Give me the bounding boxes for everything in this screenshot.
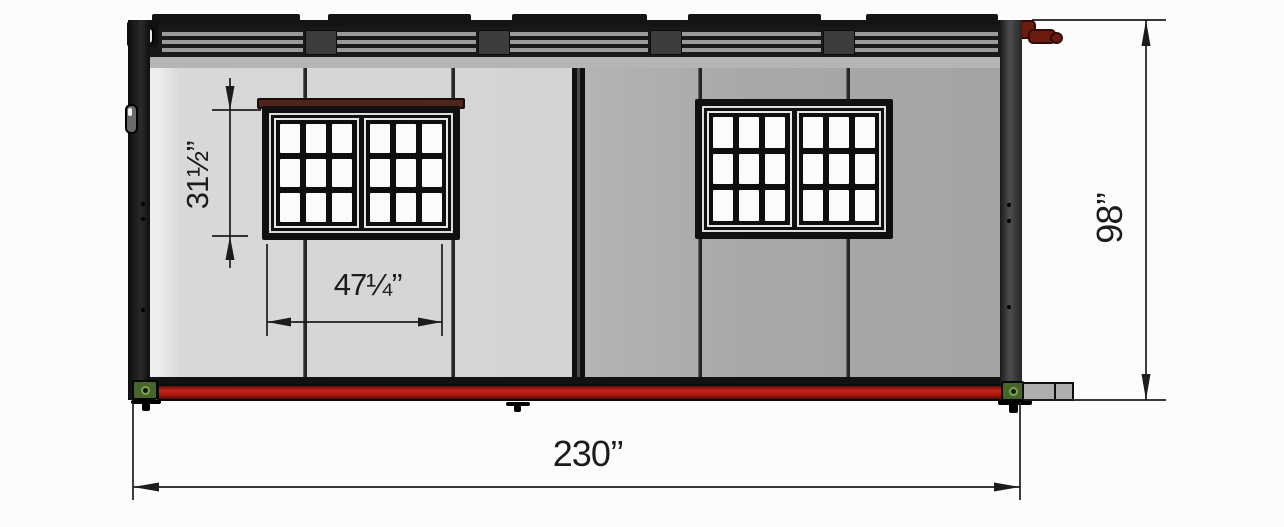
window-pane bbox=[739, 154, 759, 185]
window-pane bbox=[370, 124, 390, 153]
window-pane bbox=[765, 190, 785, 221]
window-pane bbox=[829, 117, 849, 148]
fitting-hole bbox=[1009, 387, 1018, 396]
elevation-drawing: 31½’’ 47¼’’ 98’’ 230’’ bbox=[0, 0, 1284, 527]
roof-tab bbox=[152, 14, 300, 22]
fitting-hole bbox=[141, 386, 150, 395]
window-pane bbox=[422, 193, 442, 222]
window-pane bbox=[803, 117, 823, 148]
window-pane bbox=[422, 159, 442, 188]
window-pane bbox=[370, 193, 390, 222]
roof-vent-slats bbox=[510, 27, 648, 57]
folding-hinge-knob bbox=[1050, 32, 1063, 44]
roof-tab bbox=[688, 14, 821, 22]
folded-floor-step bbox=[1022, 382, 1074, 401]
window-pane bbox=[332, 193, 352, 222]
post-rivet bbox=[1007, 203, 1011, 207]
window-pane bbox=[803, 154, 823, 185]
window-sashes bbox=[274, 118, 448, 228]
window-pane bbox=[306, 159, 326, 188]
window-pane bbox=[332, 124, 352, 153]
corner-post-right bbox=[1000, 20, 1022, 400]
window-pane bbox=[855, 154, 875, 185]
roof-block bbox=[478, 30, 510, 55]
corner-fitting-left bbox=[132, 380, 158, 400]
roof-block bbox=[823, 30, 855, 55]
sash-grid bbox=[280, 124, 353, 222]
roof-vent-slats bbox=[162, 27, 303, 57]
roof-tab bbox=[328, 14, 471, 22]
roof-vent-slats bbox=[337, 27, 476, 57]
window-pane bbox=[803, 190, 823, 221]
ground-foot bbox=[1009, 404, 1018, 413]
roof-fascia bbox=[150, 27, 1000, 57]
ground-foot bbox=[514, 405, 521, 412]
roof-tab bbox=[512, 14, 647, 22]
hinge-knob-highlight bbox=[128, 108, 132, 116]
window-pane bbox=[280, 124, 300, 153]
roof-vent-slats bbox=[682, 27, 821, 57]
window-pane bbox=[396, 159, 416, 188]
window-height-dimension: 31½’’ bbox=[178, 129, 218, 221]
window-pane bbox=[739, 117, 759, 148]
window-sash bbox=[364, 118, 449, 228]
post-rivet bbox=[1007, 305, 1011, 309]
window-pane bbox=[713, 190, 733, 221]
right-window bbox=[695, 99, 893, 239]
window-pane bbox=[829, 154, 849, 185]
ground-foot bbox=[142, 403, 150, 411]
step-divider bbox=[1054, 384, 1056, 399]
window-sash bbox=[707, 111, 792, 227]
window-sash bbox=[797, 111, 882, 227]
overall-width-dimension: 230’’ bbox=[528, 434, 648, 474]
window-sashes bbox=[707, 111, 881, 227]
sash-grid bbox=[370, 124, 443, 222]
window-pane bbox=[422, 124, 442, 153]
window-pane bbox=[280, 193, 300, 222]
roof-tab bbox=[866, 14, 998, 22]
corner-post-left bbox=[128, 20, 150, 400]
post-rivet bbox=[141, 308, 145, 312]
left-window bbox=[262, 106, 460, 240]
overall-height-dimension: 98’’ bbox=[1090, 174, 1130, 262]
sash-grid bbox=[713, 117, 786, 221]
window-width-dimension: 47¼’’ bbox=[310, 266, 426, 304]
center-post bbox=[572, 68, 585, 377]
window-pane bbox=[765, 154, 785, 185]
window-pane bbox=[306, 124, 326, 153]
post-rivet bbox=[141, 202, 145, 206]
window-pane bbox=[370, 159, 390, 188]
base-rail bbox=[157, 384, 1005, 401]
window-pane bbox=[280, 159, 300, 188]
window-pane bbox=[306, 193, 326, 222]
window-pane bbox=[829, 190, 849, 221]
roof-block bbox=[650, 30, 682, 55]
window-pane bbox=[765, 117, 785, 148]
window-pane bbox=[739, 190, 759, 221]
window-pane bbox=[713, 154, 733, 185]
post-rivet bbox=[1007, 219, 1011, 223]
window-pane bbox=[713, 117, 733, 148]
sash-grid bbox=[803, 117, 876, 221]
roof-block bbox=[305, 30, 337, 55]
window-pane bbox=[396, 193, 416, 222]
window-pane bbox=[855, 117, 875, 148]
window-sash bbox=[274, 118, 359, 228]
post-rivet bbox=[141, 217, 145, 221]
window-pane bbox=[855, 190, 875, 221]
window-pane bbox=[396, 124, 416, 153]
roof-vent-slats bbox=[855, 27, 998, 57]
window-pane bbox=[332, 159, 352, 188]
